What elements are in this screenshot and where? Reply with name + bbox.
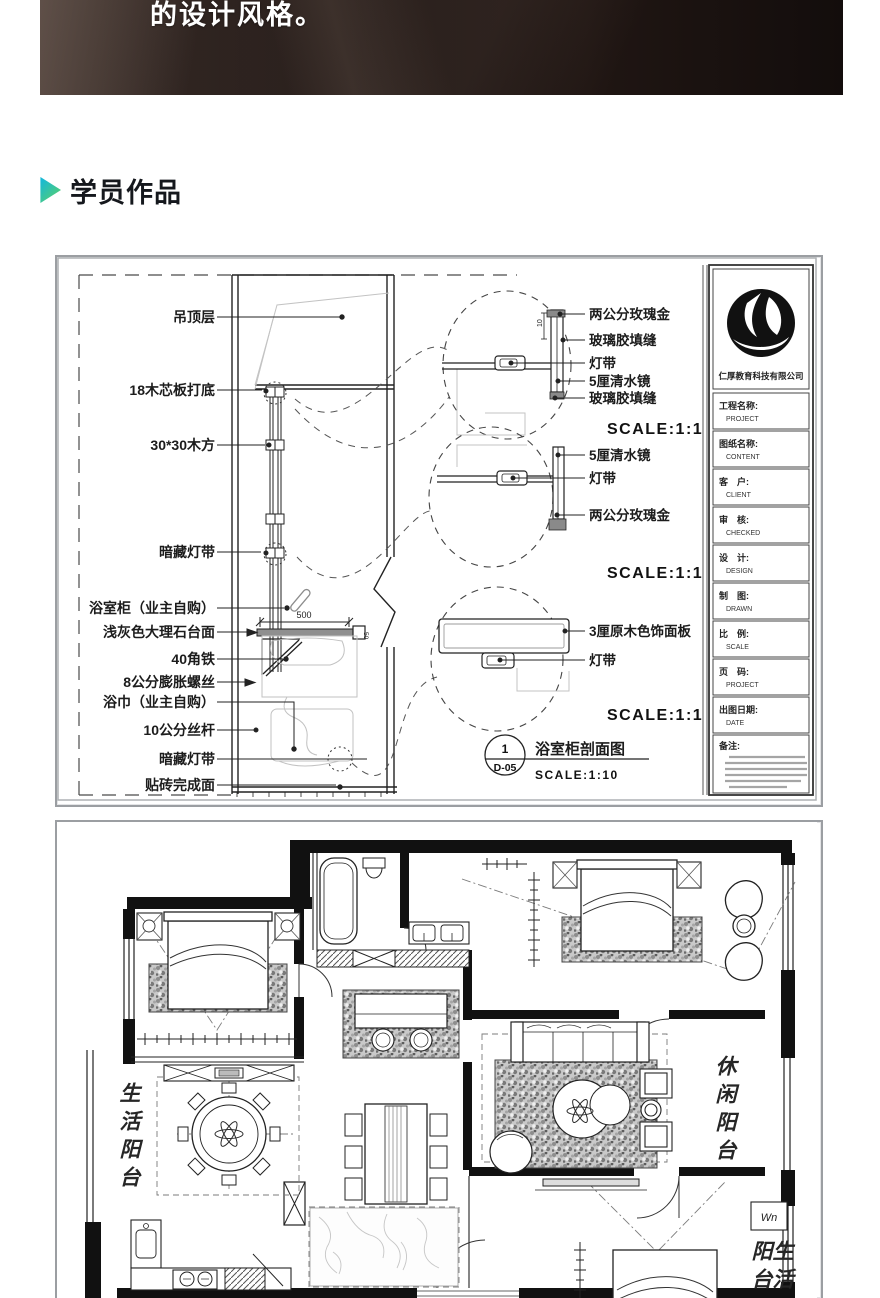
detail2-scale: SCALE:1:1 bbox=[607, 565, 703, 582]
detail3-label-1: 灯带 bbox=[589, 652, 617, 668]
title-block: 仁厚教育科技有限公司 工程名称: 图纸名称: 客 户: 审 核: 设 计: 制 … bbox=[703, 265, 813, 795]
left-label-2: 30*30木方 bbox=[150, 437, 215, 453]
detail3-label-0: 3厘原木色饰面板 bbox=[589, 623, 692, 639]
tb-row1-cn: 图纸名称: bbox=[719, 438, 758, 449]
tb-row0-cn: 工程名称: bbox=[719, 400, 758, 411]
tb-row5-en: DRAWN bbox=[726, 606, 752, 613]
room-label-left-balcony: 生活阳台 bbox=[119, 1082, 140, 1194]
tb-row8-en: DATE bbox=[726, 720, 744, 727]
tb-row6-en: SCALE bbox=[726, 644, 749, 651]
tb-row2-cn: 客 户: bbox=[718, 476, 749, 487]
banner-caption: 的设计风格。 bbox=[150, 0, 324, 32]
tb-row3-en: CHECKED bbox=[726, 530, 760, 537]
detail1-label-1: 玻璃胶填缝 bbox=[589, 332, 657, 348]
left-label-0: 吊顶层 bbox=[173, 309, 215, 325]
left-label-10: 暗藏灯带 bbox=[159, 751, 215, 767]
tb-row0-en: PROJECT bbox=[726, 416, 759, 423]
floor-plan-svg: Wn bbox=[57, 822, 817, 1298]
left-label-1: 18木芯板打底 bbox=[129, 382, 215, 398]
tb-row4-en: DESIGN bbox=[726, 568, 753, 575]
left-label-6: 40角铁 bbox=[171, 651, 215, 667]
section-title: 学员作品 bbox=[70, 171, 182, 210]
detail1-label-2: 灯带 bbox=[589, 355, 617, 371]
company-logo bbox=[727, 289, 795, 357]
floor-plan-sheet: Wn 生活阳台 休闲阳台 生活阳台 bbox=[55, 820, 823, 1298]
tb-row5-cn: 制 图: bbox=[719, 590, 749, 601]
play-triangle-icon bbox=[40, 177, 61, 203]
tb-row7-en: PROJECT bbox=[726, 682, 759, 689]
tb-row2-en: CLIENT bbox=[726, 492, 752, 499]
detail2-label-2: 两公分玫瑰金 bbox=[589, 507, 670, 523]
washer-label: Wn bbox=[761, 1212, 778, 1224]
hero-banner-image: 的设计风格。 bbox=[40, 0, 843, 95]
left-label-11: 贴砖完成面 bbox=[145, 777, 215, 793]
callout-scale: SCALE:1:10 bbox=[535, 768, 619, 782]
section-drawing-sheet: 500 50 bbox=[55, 255, 823, 807]
dim-500: 500 bbox=[296, 610, 311, 620]
room-label-bottom-balcony: 生活阳台 bbox=[751, 1240, 793, 1298]
tb-row1-en: CONTENT bbox=[726, 454, 761, 461]
left-label-4: 浴室柜（业主自购） bbox=[89, 600, 215, 616]
living-room bbox=[490, 1022, 672, 1190]
tb-row3-cn: 审 核: bbox=[719, 514, 749, 525]
tb-row8-cn: 出图日期: bbox=[719, 704, 758, 715]
detail2-label-0: 5厘清水镜 bbox=[589, 447, 651, 463]
tb-row7-cn: 页 码: bbox=[719, 667, 749, 677]
detail1-label-3: 5厘清水镜 bbox=[589, 373, 651, 389]
tb-notes-label: 备注: bbox=[718, 740, 740, 751]
detail3-scale: SCALE:1:1 bbox=[607, 707, 703, 724]
dining-center bbox=[345, 1104, 447, 1204]
detail1-dim-10: 10 bbox=[537, 319, 544, 327]
left-label-5: 浅灰色大理石台面 bbox=[103, 624, 215, 640]
detail1-label-0: 两公分玫瑰金 bbox=[589, 306, 670, 322]
tb-row6-cn: 比 例: bbox=[719, 628, 749, 639]
section-drawing-svg: 500 50 bbox=[57, 257, 817, 801]
callout-number: 1 bbox=[502, 742, 509, 756]
foyer-marble bbox=[310, 1208, 458, 1286]
tb-row4-cn: 设 计: bbox=[719, 552, 749, 563]
left-label-8: 浴巾（业主自购） bbox=[103, 694, 215, 710]
room-label-right-balcony: 休闲阳台 bbox=[715, 1055, 736, 1167]
company-name: 仁厚教育科技有限公司 bbox=[718, 371, 803, 381]
left-label-9: 10公分丝杆 bbox=[143, 722, 215, 738]
left-label-7: 8公分膨胀螺丝 bbox=[123, 674, 215, 690]
piano-nook bbox=[343, 990, 459, 1058]
detail2-label-1: 灯带 bbox=[589, 470, 617, 486]
detail1-label-4: 玻璃胶填缝 bbox=[589, 390, 657, 406]
dim-50: 50 bbox=[362, 632, 369, 640]
callout-title: 浴室柜剖面图 bbox=[535, 740, 625, 758]
callout-sheet: D-05 bbox=[494, 762, 517, 774]
section-header: 学员作品 bbox=[40, 174, 182, 206]
left-label-3: 暗藏灯带 bbox=[159, 544, 215, 560]
detail1-scale: SCALE:1:1 bbox=[607, 421, 703, 438]
